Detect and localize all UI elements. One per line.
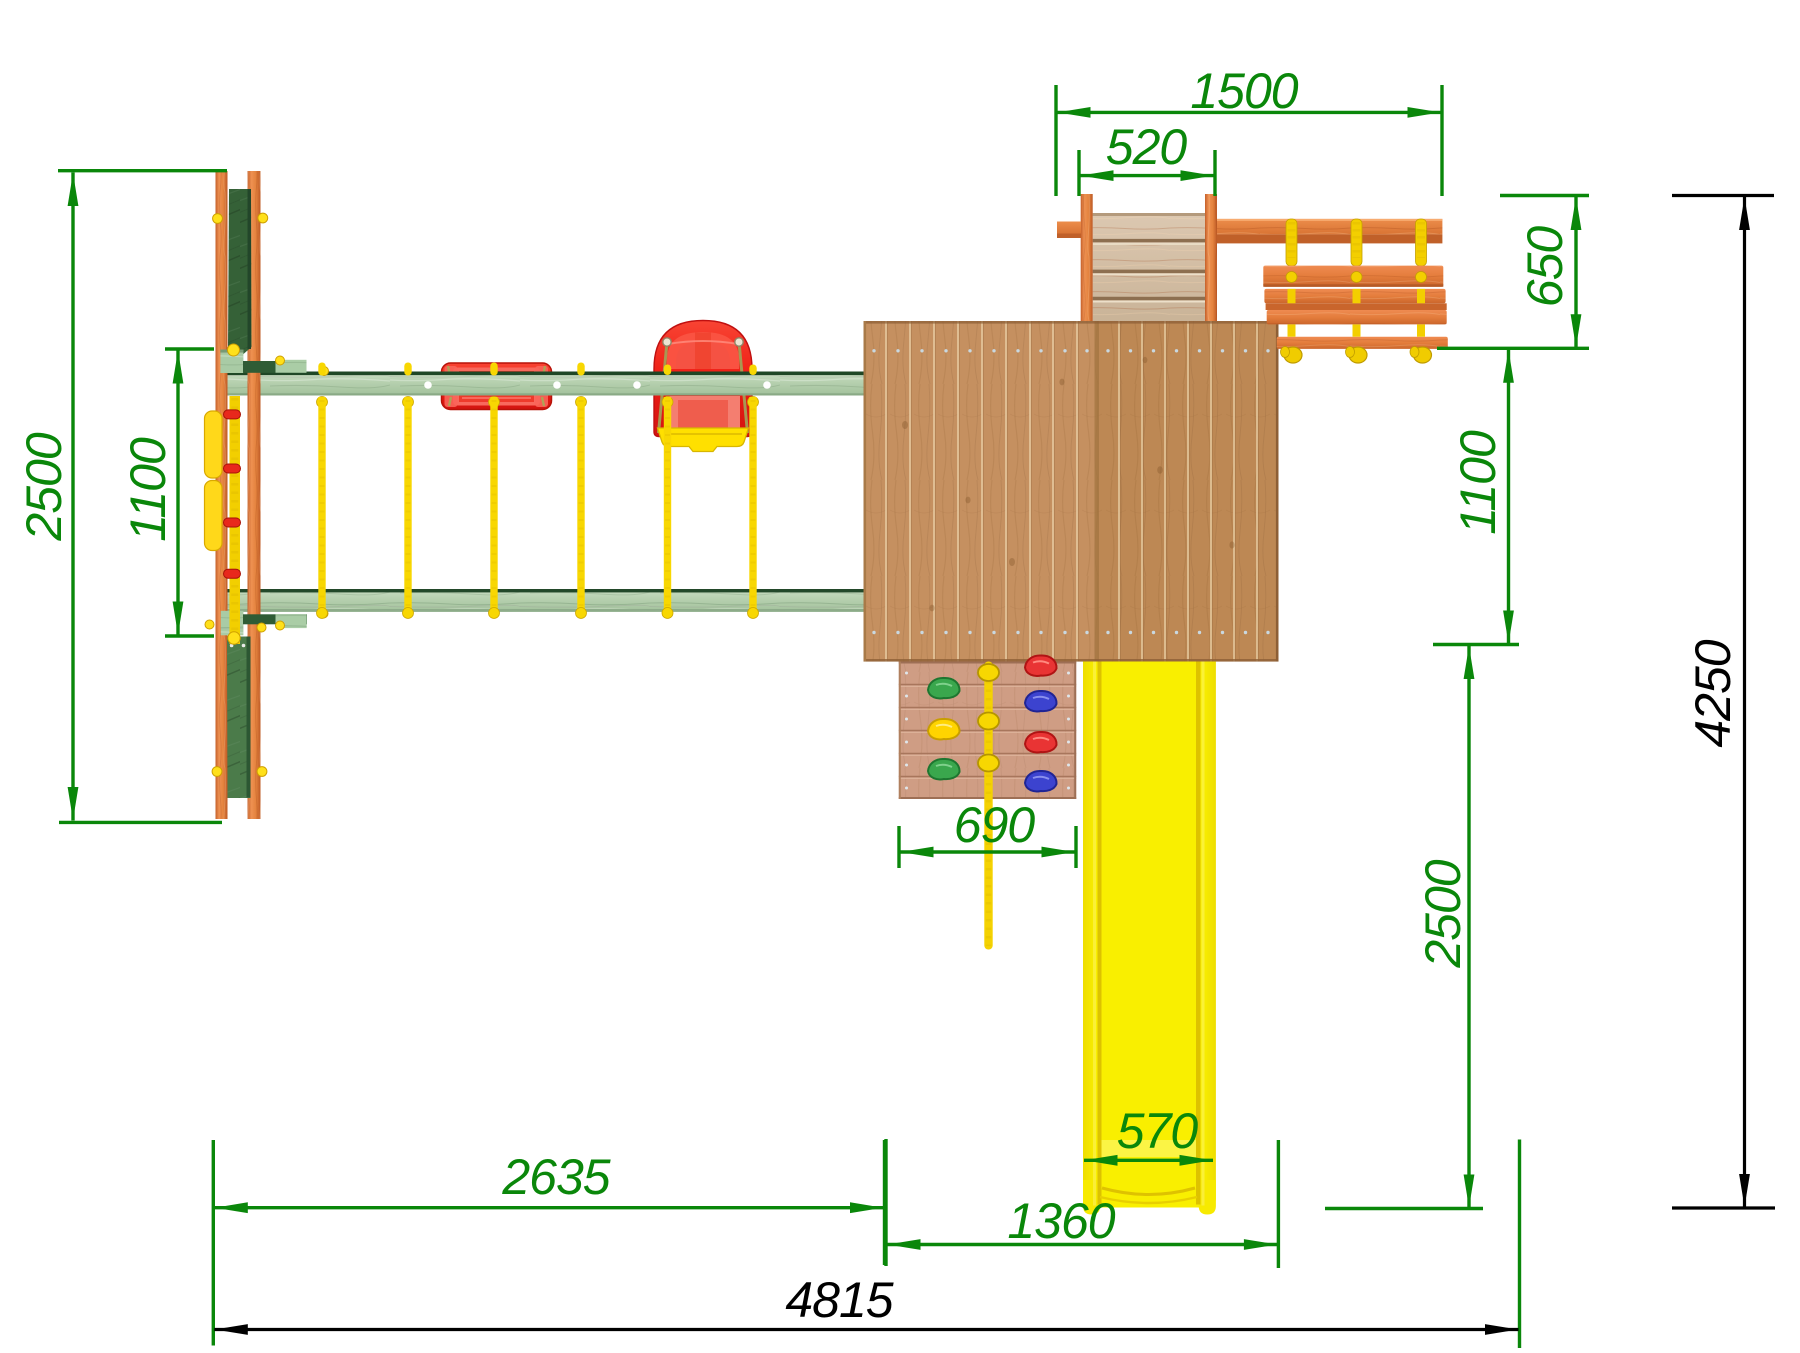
svg-text:520: 520	[1106, 119, 1188, 175]
svg-text:4815: 4815	[785, 1272, 893, 1328]
svg-text:570: 570	[1117, 1103, 1199, 1159]
svg-text:2635: 2635	[501, 1149, 610, 1205]
svg-text:1100: 1100	[120, 437, 176, 542]
svg-text:650: 650	[1517, 226, 1573, 308]
svg-text:4250: 4250	[1685, 639, 1741, 747]
svg-text:1100: 1100	[1450, 430, 1506, 535]
svg-text:690: 690	[954, 797, 1036, 853]
svg-text:1500: 1500	[1190, 63, 1298, 119]
svg-text:1360: 1360	[1007, 1193, 1115, 1249]
svg-text:2500: 2500	[16, 432, 72, 541]
svg-text:2500: 2500	[1415, 859, 1471, 968]
